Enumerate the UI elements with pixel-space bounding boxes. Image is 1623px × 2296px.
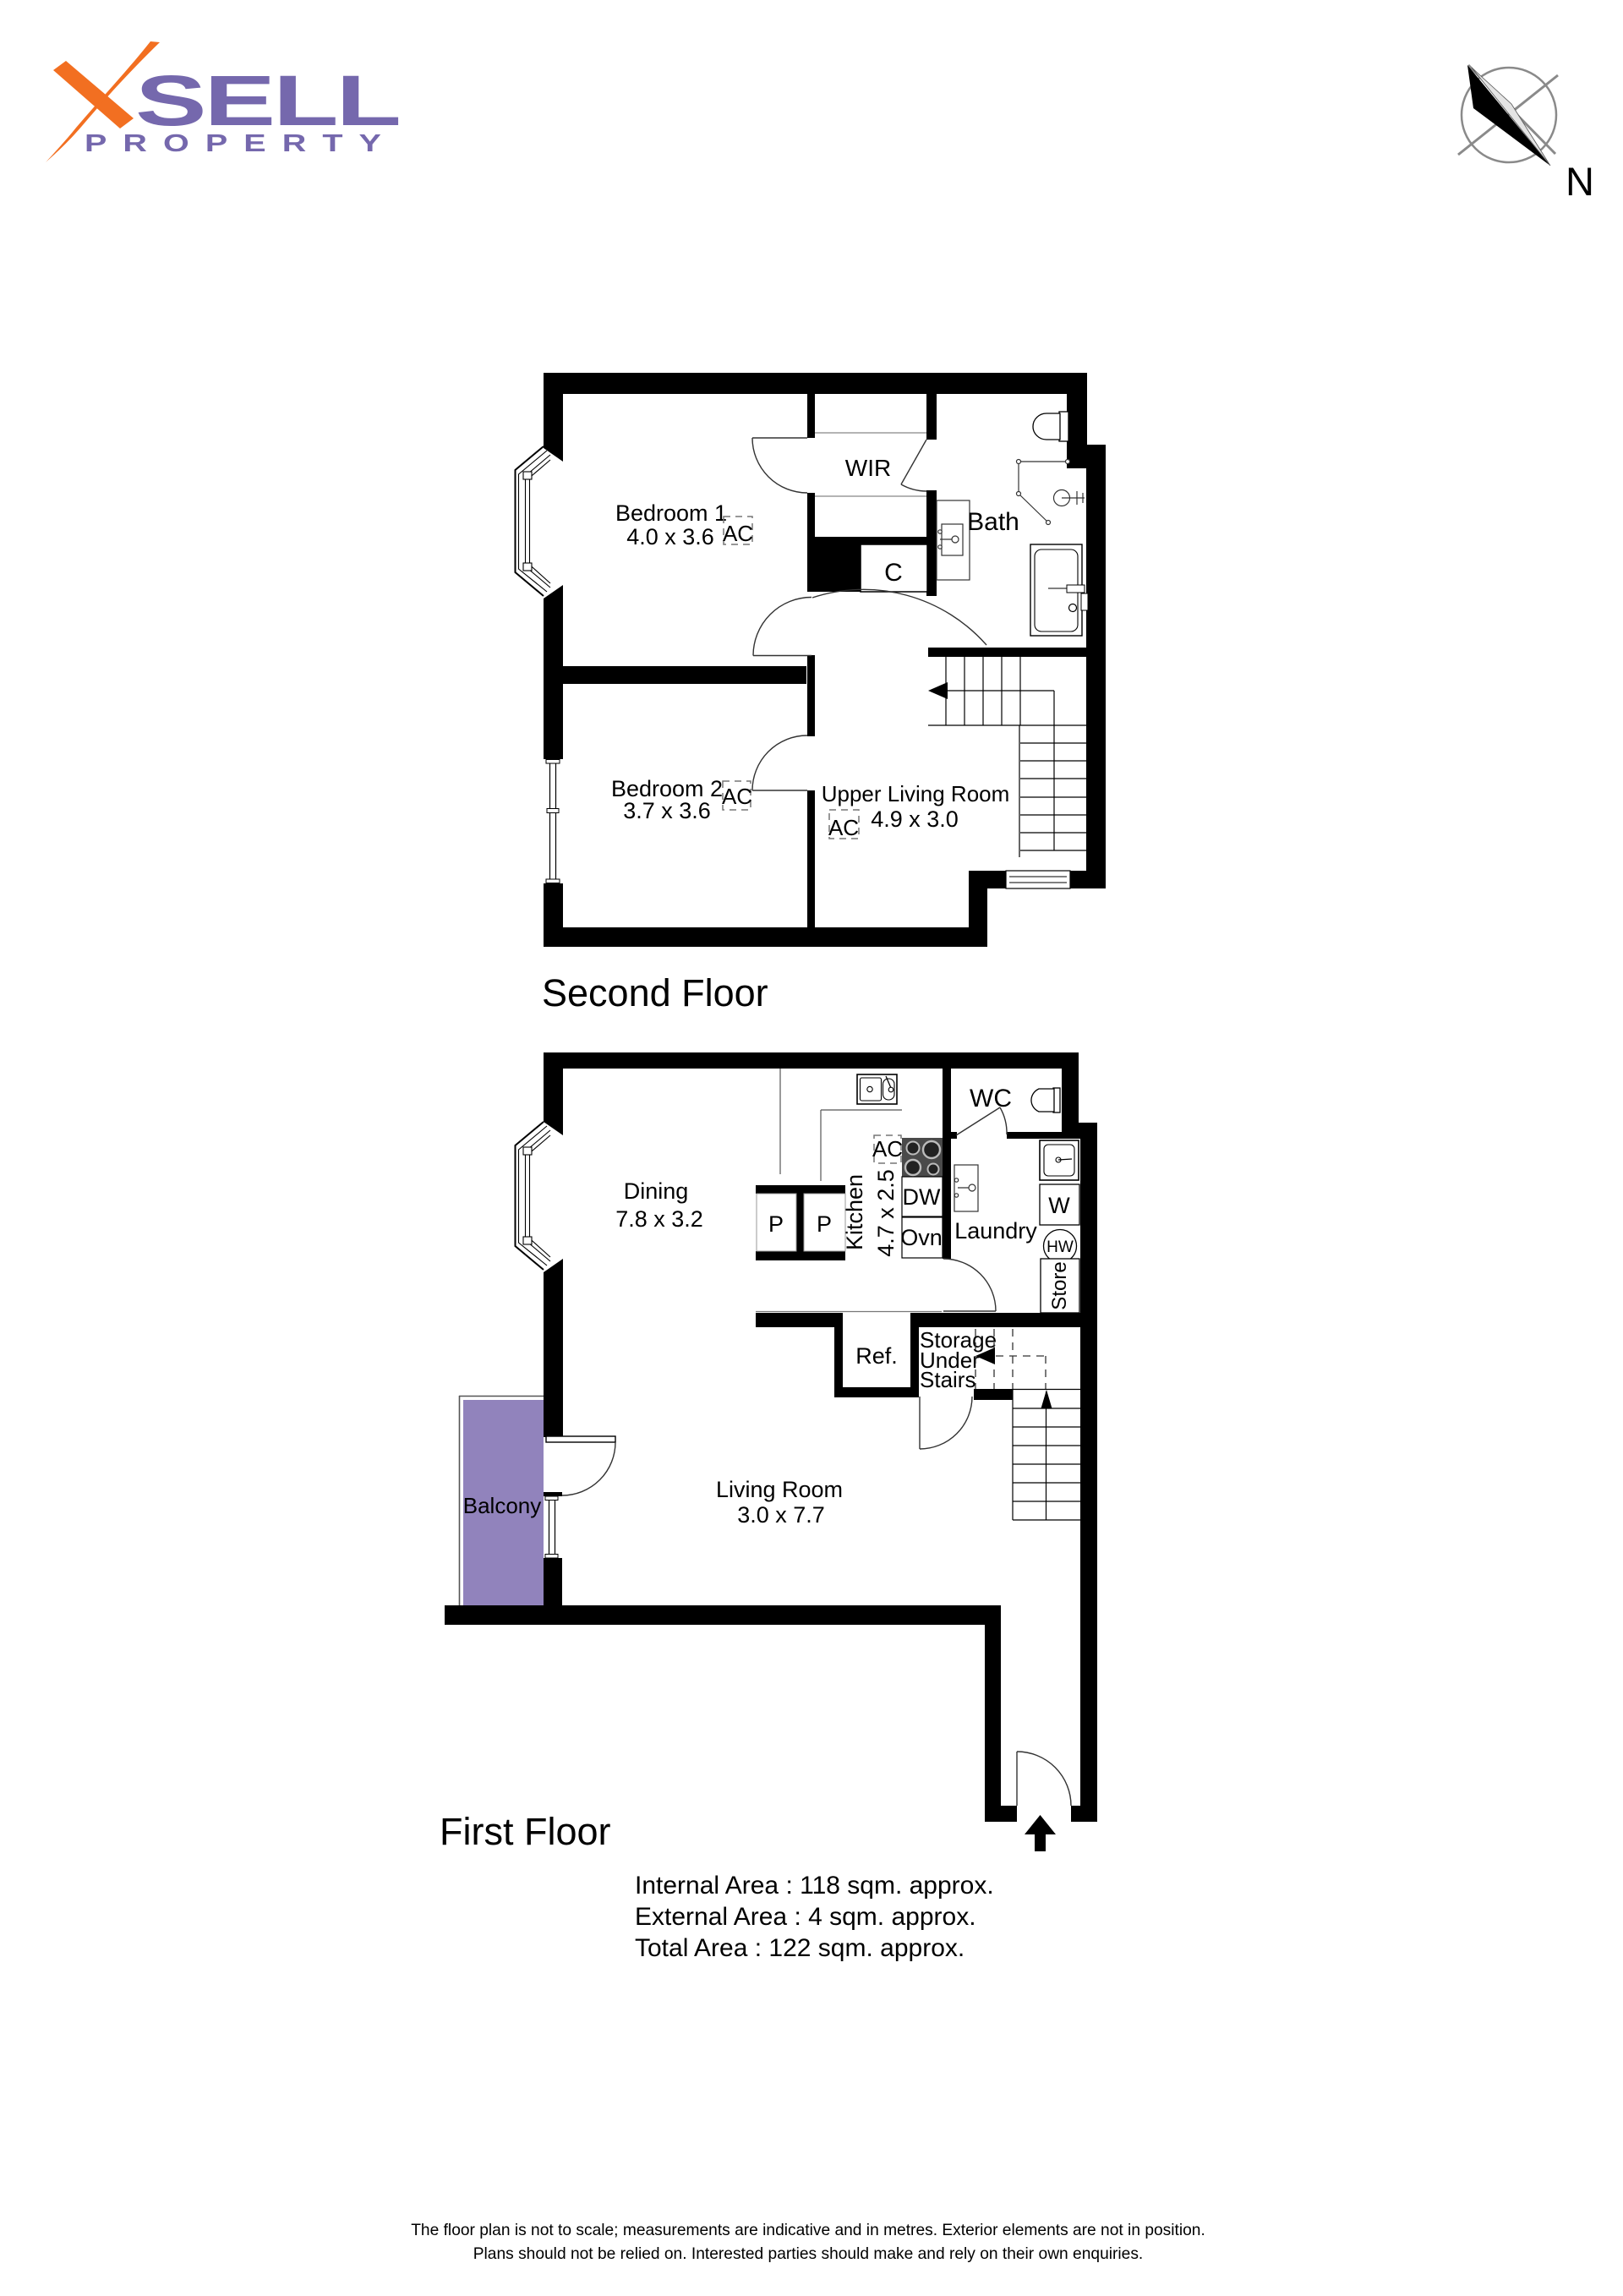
svg-text:Living Room: Living Room bbox=[716, 1477, 843, 1502]
svg-text:The floor plan is not to scale: The floor plan is not to scale; measurem… bbox=[411, 2222, 1205, 2239]
svg-text:P: P bbox=[817, 1211, 832, 1237]
svg-text:WC: WC bbox=[970, 1085, 1012, 1112]
svg-text:WIR: WIR bbox=[845, 455, 891, 481]
svg-text:4.0 x 3.6: 4.0 x 3.6 bbox=[626, 524, 714, 549]
svg-text:External Area : 4 sqm. approx.: External Area : 4 sqm. approx. bbox=[635, 1903, 976, 1931]
svg-text:Balcony: Balcony bbox=[463, 1493, 542, 1518]
svg-text:P: P bbox=[768, 1211, 784, 1237]
svg-text:AC: AC bbox=[872, 1136, 903, 1162]
svg-text:C: C bbox=[884, 559, 903, 587]
svg-text:3.7 x 3.6: 3.7 x 3.6 bbox=[623, 798, 711, 823]
svg-text:First Floor: First Floor bbox=[440, 1810, 611, 1853]
svg-text:N: N bbox=[1566, 159, 1594, 204]
svg-text:4.9 x 3.0: 4.9 x 3.0 bbox=[871, 806, 959, 832]
svg-text:W: W bbox=[1048, 1193, 1070, 1218]
svg-text:Bath: Bath bbox=[967, 508, 1019, 536]
svg-text:Laundry: Laundry bbox=[954, 1218, 1037, 1244]
svg-text:7.8 x 3.2: 7.8 x 3.2 bbox=[615, 1206, 703, 1232]
svg-text:Second Floor: Second Floor bbox=[542, 971, 768, 1014]
svg-text:SELL: SELL bbox=[135, 61, 399, 140]
svg-text:Bedroom 1: Bedroom 1 bbox=[615, 500, 727, 526]
svg-text:Plans should not be relied on.: Plans should not be relied on. Intereste… bbox=[473, 2245, 1144, 2263]
svg-text:Ref.: Ref. bbox=[855, 1343, 898, 1369]
svg-text:Store: Store bbox=[1048, 1261, 1071, 1309]
svg-text:DW: DW bbox=[903, 1184, 941, 1210]
svg-text:Dining: Dining bbox=[624, 1178, 689, 1204]
svg-text:HW: HW bbox=[1046, 1238, 1074, 1256]
svg-text:3.0 x 7.7: 3.0 x 7.7 bbox=[737, 1502, 825, 1528]
svg-text:AC: AC bbox=[828, 815, 859, 840]
svg-text:4.7 x 2.5: 4.7 x 2.5 bbox=[873, 1169, 899, 1257]
svg-text:Internal Area : 118 sqm. appro: Internal Area : 118 sqm. approx. bbox=[635, 1872, 994, 1900]
svg-text:AC: AC bbox=[723, 521, 753, 546]
svg-text:Kitchen: Kitchen bbox=[842, 1174, 867, 1250]
svg-text:Stairs: Stairs bbox=[920, 1367, 975, 1392]
svg-text:Ovn: Ovn bbox=[900, 1225, 943, 1250]
svg-text:PROPERTY: PROPERTY bbox=[85, 130, 397, 157]
svg-text:AC: AC bbox=[722, 784, 752, 809]
svg-text:Upper Living Room: Upper Living Room bbox=[822, 781, 1010, 806]
svg-text:Total Area : 122 sqm. approx.: Total Area : 122 sqm. approx. bbox=[635, 1934, 965, 1962]
